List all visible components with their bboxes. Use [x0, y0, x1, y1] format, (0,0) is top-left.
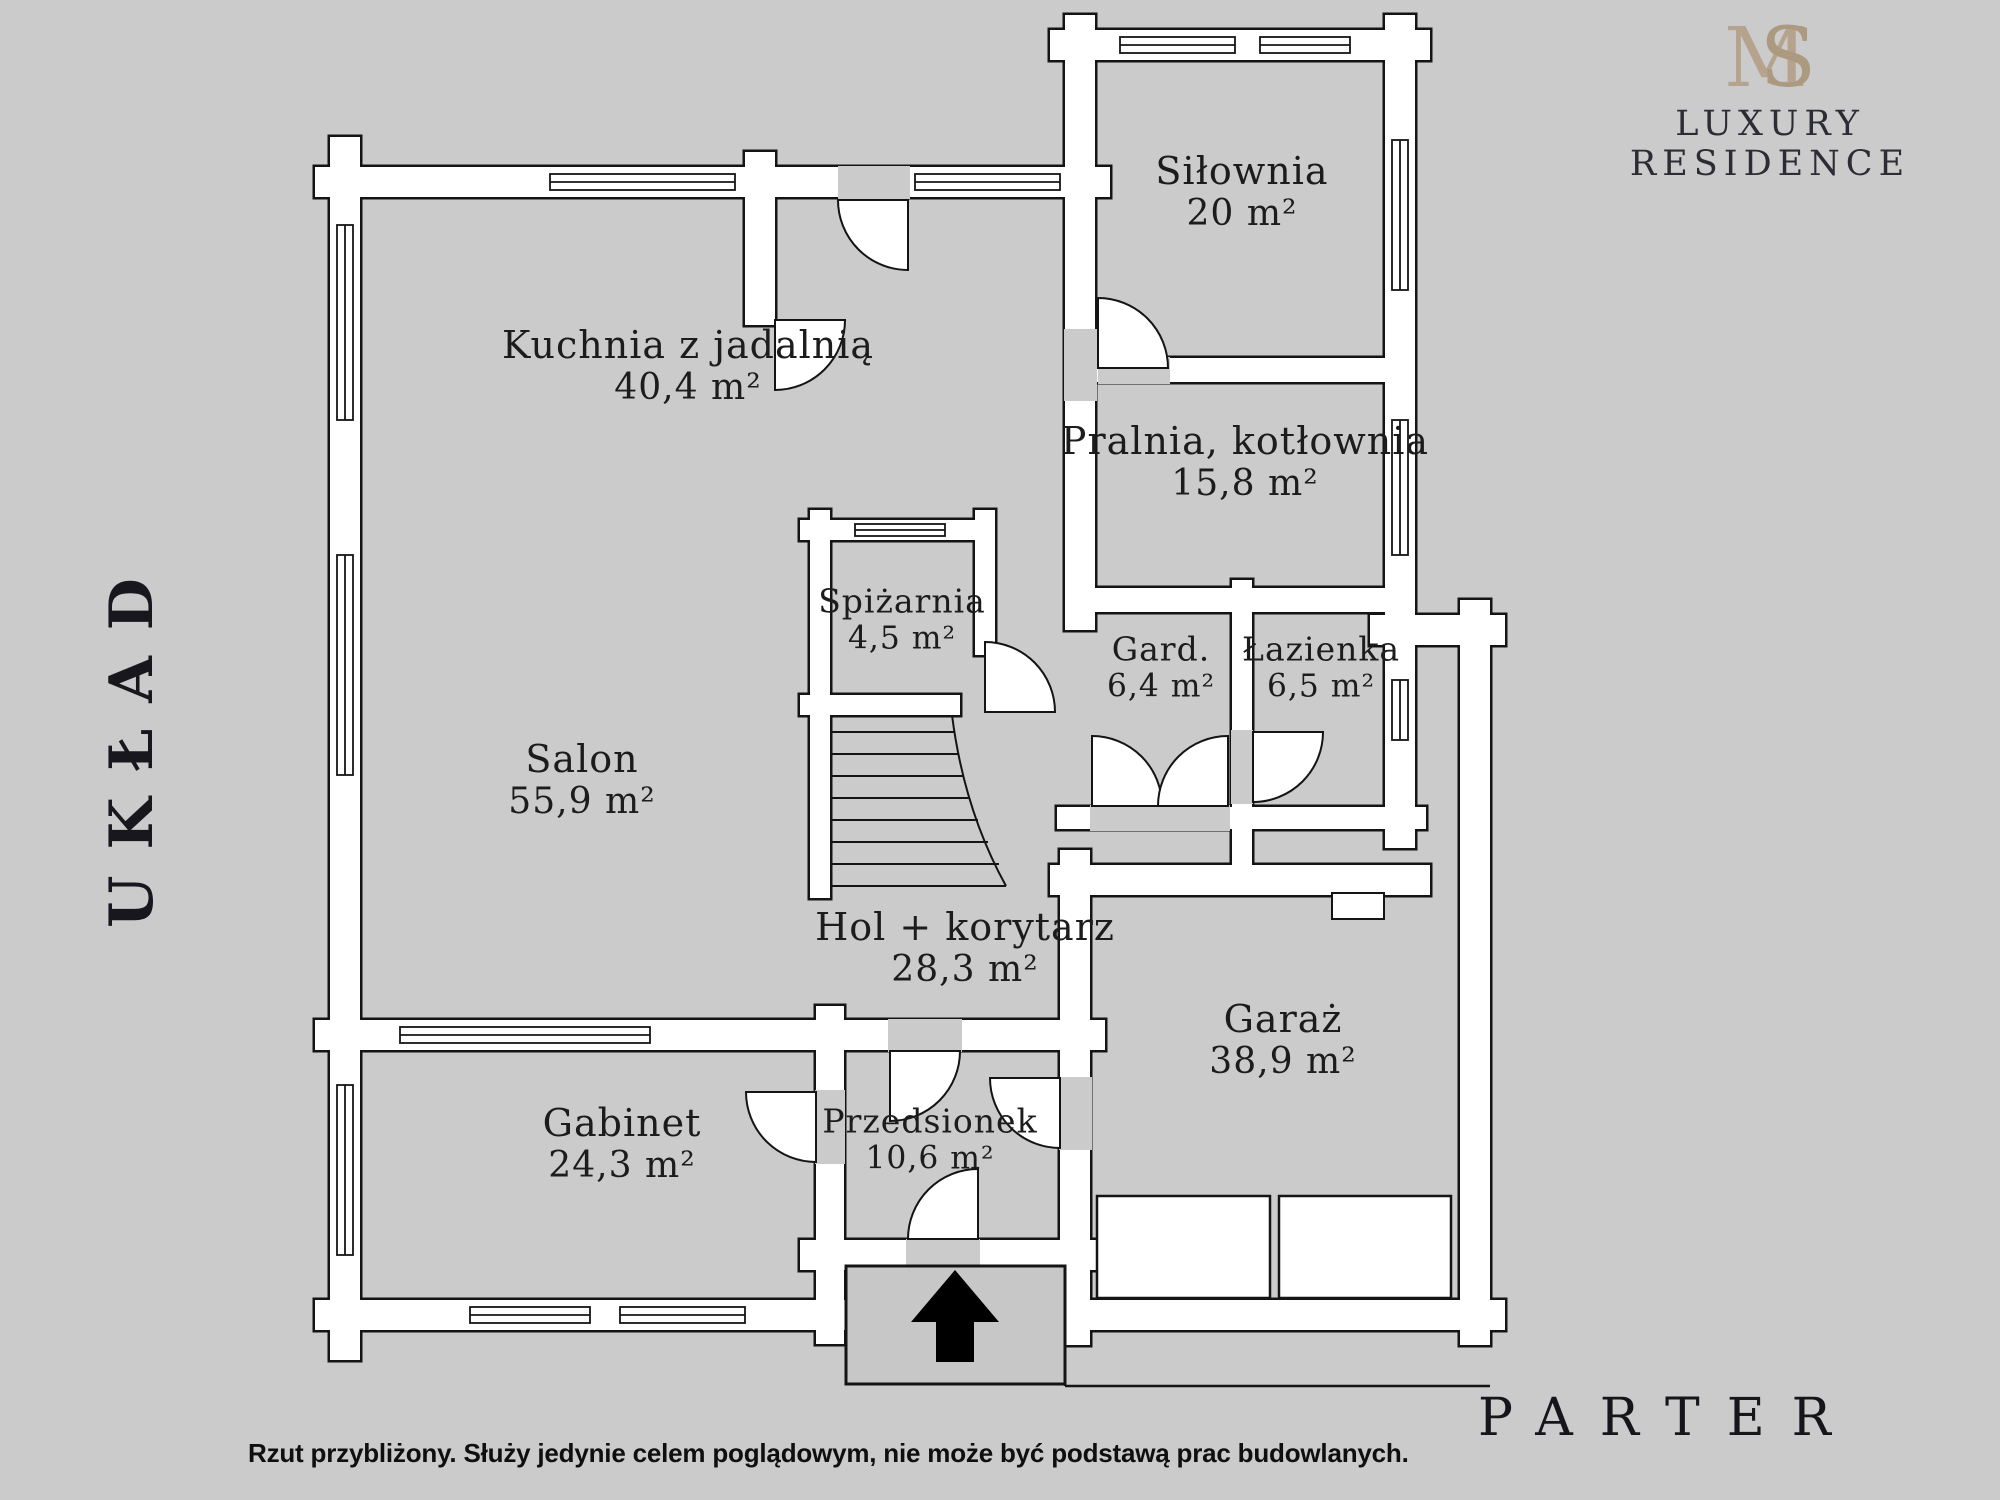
- garage-doors: [1097, 893, 1451, 1298]
- room-label-kuchnia: Kuchnia z jadalnią40,4 m²: [502, 323, 874, 409]
- room-label-silownia: Siłownia20 m²: [1155, 149, 1328, 235]
- room-label-hol: Hol + korytarz28,3 m²: [815, 905, 1115, 991]
- floor-label: PARTER: [1478, 1388, 1858, 1448]
- room-label-garderoba: Gard.6,4 m²: [1107, 631, 1215, 706]
- floorplan-page: { "brand": { "monogram_m": "M", "monogra…: [0, 0, 2000, 1500]
- room-label-garaz: Garaż38,9 m²: [1209, 997, 1356, 1083]
- disclaimer-text: Rzut przybliżony. Służy jedynie celem po…: [248, 1438, 1409, 1469]
- room-label-salon: Salon55,9 m²: [508, 737, 655, 823]
- brand-name: LUXURY RESIDENCE: [1560, 104, 1980, 184]
- floorplan-drawing: [0, 0, 2000, 1500]
- brand-monogram-icon: MS: [1560, 18, 1980, 106]
- entrance-porch: [846, 1266, 1065, 1384]
- room-label-przedsionek: Przedsionek10,6 m²: [822, 1103, 1037, 1178]
- driveway-lines: [1065, 1332, 1490, 1386]
- layout-side-label: UKŁAD: [97, 552, 167, 928]
- room-label-gabinet: Gabinet24,3 m²: [543, 1101, 702, 1187]
- staircase: [832, 715, 1006, 886]
- room-label-spizarnia: Spiżarnia4,5 m²: [818, 583, 986, 658]
- brand-logo: MS LUXURY RESIDENCE: [1560, 18, 1980, 184]
- room-label-pralnia: Pralnia, kotłownia15,8 m²: [1061, 419, 1429, 505]
- room-label-lazienka: Łazienka6,5 m²: [1242, 631, 1400, 706]
